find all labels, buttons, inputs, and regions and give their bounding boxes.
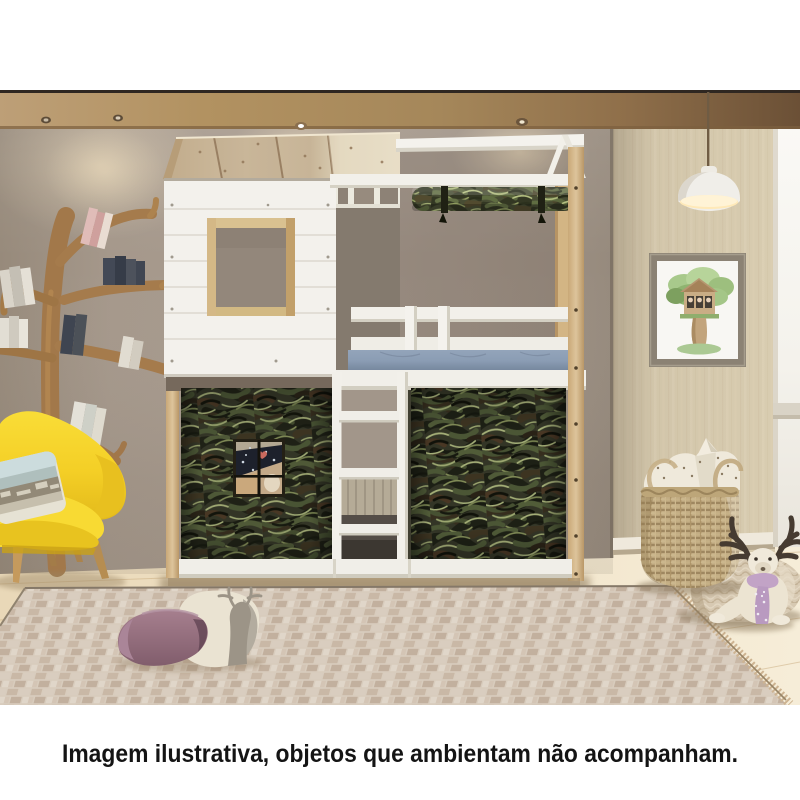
svg-text:Imagem ilustrativa, objetos qu: Imagem ilustrativa, objetos que ambienta…: [62, 740, 738, 768]
